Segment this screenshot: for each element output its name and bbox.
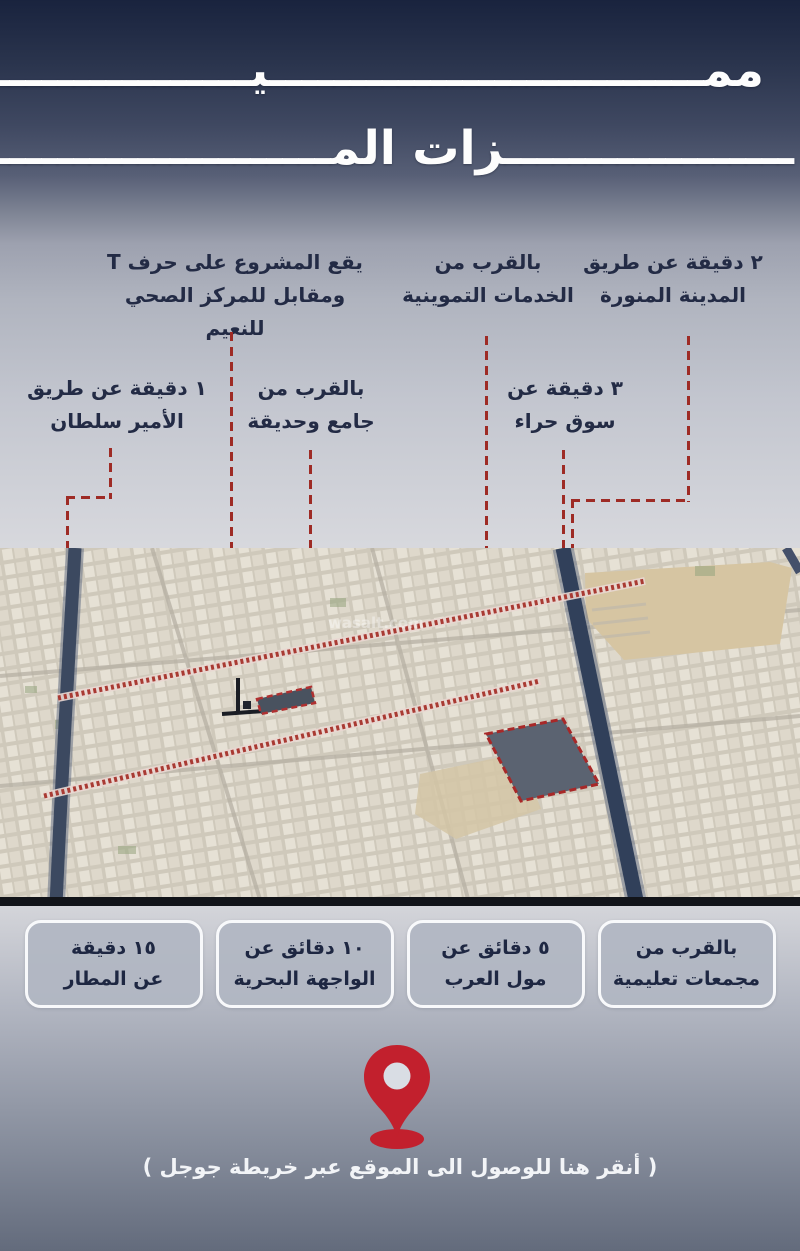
badge-mall-of-arabia: ٥ دقائق عن مول العرب xyxy=(407,920,585,1008)
badge-airport: ١٥ دقيقة عن المطار xyxy=(25,920,203,1008)
satellite-map: wasalt.com xyxy=(0,548,800,906)
map-bottom-edge xyxy=(0,897,800,906)
map-desert-area xyxy=(585,562,792,660)
map-watermark: wasalt.com xyxy=(328,614,424,632)
connector-line-sultan-elbow xyxy=(66,496,112,499)
badge-text: ١٠ دقائق عن xyxy=(219,933,391,964)
connector-line-madinah-elbow xyxy=(571,499,690,502)
badge-text: مول العرب xyxy=(410,964,582,995)
badge-text: مجمعات تعليمية xyxy=(601,964,773,995)
badge-text: ١٥ دقيقة xyxy=(28,933,200,964)
callout-supply-services: بالقرب من الخدمات التموينية xyxy=(398,246,578,312)
callout-mosque-park: بالقرب من جامع وحديقة xyxy=(232,372,390,438)
callout-hira-market: ٣ دقيقة عن سوق حراء xyxy=(485,372,645,438)
badge-text: الواجهة البحرية xyxy=(219,964,391,995)
location-features-poster: ممـــــــــــــــــــــــــــيــــــــــ… xyxy=(0,0,800,1251)
badge-text: بالقرب من xyxy=(601,933,773,964)
callout-text: بالقرب من xyxy=(398,246,578,279)
page-title-line1: ممـــــــــــــــــــــــــــيــــــــــ… xyxy=(0,44,800,98)
page-title-line2: ــــــــــــــــــزات المـــــــــــــــ… xyxy=(0,122,800,176)
callout-text: بالقرب من xyxy=(232,372,390,405)
connector-line-madinah-top xyxy=(687,336,690,502)
callout-prince-sultan-road: ١ دقيقة عن طريق الأمير سلطان xyxy=(22,372,212,438)
callout-text: ٢ دقيقة عن طريق xyxy=(578,246,768,279)
callout-text: ومقابل للمركز الصحي للنعيم xyxy=(100,279,370,345)
callout-madinah-road: ٢ دقيقة عن طريق المدينة المنورة xyxy=(578,246,768,312)
badge-text: عن المطار xyxy=(28,964,200,995)
google-maps-cta[interactable]: ( أنقر هنا للوصول الى الموقع عبر خريطة ج… xyxy=(0,1155,800,1179)
badge-educational-complexes: بالقرب من مجمعات تعليمية xyxy=(598,920,776,1008)
location-pin-icon[interactable] xyxy=(357,1042,437,1152)
callout-text: يقع المشروع على حرف T xyxy=(100,246,370,279)
callout-text: الأمير سلطان xyxy=(22,405,212,438)
callout-text: جامع وحديقة xyxy=(232,405,390,438)
callout-text: ٣ دقيقة عن xyxy=(485,372,645,405)
callout-text: الخدمات التموينية xyxy=(398,279,578,312)
t-intersection-marker xyxy=(243,701,251,709)
badge-text: ٥ دقائق عن xyxy=(410,933,582,964)
callout-text: المدينة المنورة xyxy=(578,279,768,312)
connector-line-sultan-top xyxy=(109,448,112,499)
distance-badges-row: بالقرب من مجمعات تعليمية ٥ دقائق عن مول … xyxy=(0,920,800,1008)
callout-text: سوق حراء xyxy=(485,405,645,438)
callout-text: ١ دقيقة عن طريق xyxy=(22,372,212,405)
callout-project-position: يقع المشروع على حرف T ومقابل للمركز الصح… xyxy=(100,246,370,345)
badge-waterfront: ١٠ دقائق عن الواجهة البحرية xyxy=(216,920,394,1008)
